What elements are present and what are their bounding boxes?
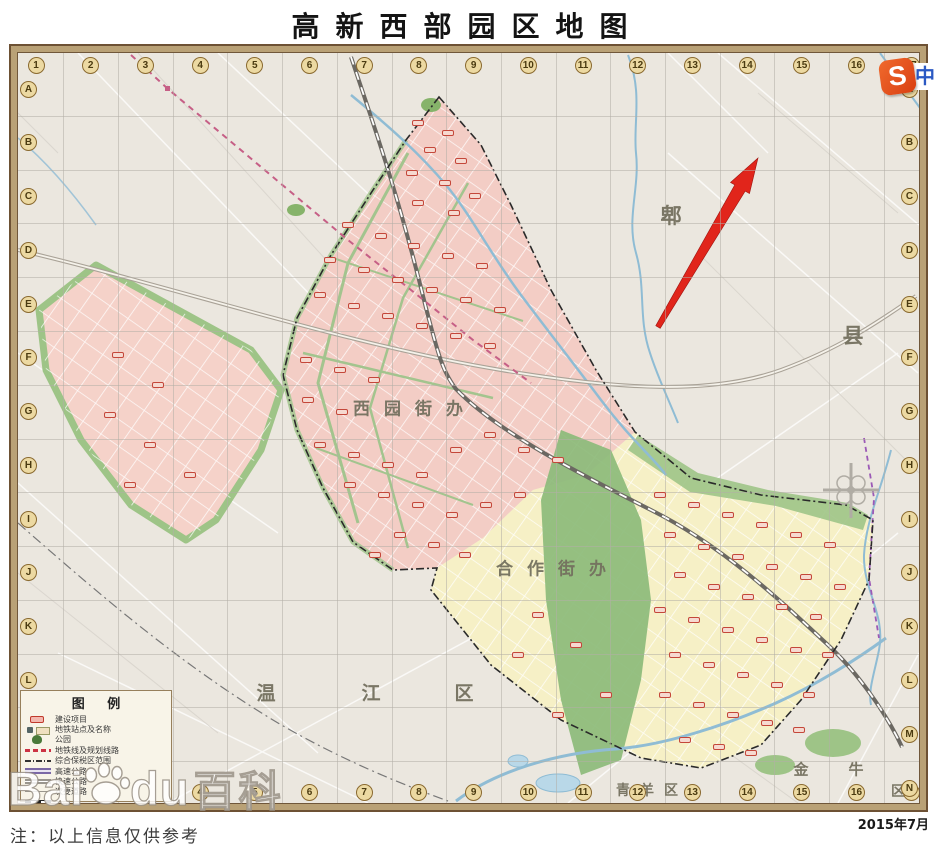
legend-item-label: 建设项目	[55, 714, 87, 725]
project-marker	[732, 554, 744, 560]
project-marker	[674, 572, 686, 578]
district-label: 江	[361, 679, 380, 706]
district-label: 合作街办	[496, 555, 620, 580]
grid-line	[392, 53, 393, 803]
grid-row-label: I	[20, 511, 37, 528]
legend-item: 建设项目	[25, 714, 167, 724]
grid-col-label: 16	[848, 57, 865, 74]
project-marker	[184, 472, 196, 478]
expwy-swatch-icon	[25, 768, 51, 774]
project-marker	[382, 462, 394, 468]
project-marker	[480, 502, 492, 508]
grid-line	[282, 53, 283, 803]
grid-col-label: 10	[520, 57, 537, 74]
project-marker	[570, 642, 582, 648]
grid-col-label: 7	[356, 57, 373, 74]
grid-row-label: I	[901, 511, 918, 528]
district-label: 郫	[661, 200, 682, 230]
grid-col-label: 1	[28, 57, 45, 74]
grid-row-label: H	[20, 457, 37, 474]
metro-station-swatch-icon	[25, 725, 51, 735]
grid-line	[446, 53, 447, 803]
legend-title: 图 例	[34, 693, 167, 712]
park-icon	[421, 98, 441, 112]
project-marker	[679, 737, 691, 743]
project-marker	[532, 612, 544, 618]
project-marker	[369, 552, 381, 558]
project-marker	[790, 532, 802, 538]
project-marker	[382, 313, 394, 319]
legend-box: 图 例 建设项目地铁站点及名称公园地铁线及规划线路综合保税区范围高速公路快速公路…	[20, 690, 172, 802]
project-marker	[708, 584, 720, 590]
grid-line	[829, 53, 830, 803]
project-marker	[344, 482, 356, 488]
project-marker	[439, 180, 451, 186]
project-marker	[745, 750, 757, 756]
project-marker	[450, 333, 462, 339]
district-label: 牛	[848, 759, 863, 780]
grid-line	[18, 600, 919, 601]
project-marker	[314, 442, 326, 448]
rail-swatch-icon	[25, 800, 51, 804]
project-marker	[698, 544, 710, 550]
map-date: 2015年7月	[858, 814, 929, 833]
district-label: 青羊区	[616, 780, 688, 800]
project-marker	[703, 662, 715, 668]
map-frame: 图 例 建设项目地铁站点及名称公园地铁线及规划线路综合保税区范围高速公路快速公路…	[9, 44, 928, 812]
project-marker	[455, 158, 467, 164]
legend-item-label: 综合保税区范围	[55, 755, 111, 766]
project-marker	[742, 594, 754, 600]
project-marker	[727, 712, 739, 718]
project-marker	[124, 482, 136, 488]
project-marker	[737, 672, 749, 678]
project-marker	[514, 492, 526, 498]
grid-row-label: D	[901, 242, 918, 259]
grid-line	[18, 439, 919, 440]
grid-line	[173, 53, 174, 803]
pond	[536, 774, 580, 792]
project-marker	[766, 564, 778, 570]
grid-row-label: M	[901, 726, 918, 743]
project-marker	[664, 532, 676, 538]
project-marker	[112, 352, 124, 358]
grid-row-label: D	[20, 242, 37, 259]
grid-line	[18, 116, 919, 117]
project-marker	[834, 584, 846, 590]
grid-line	[18, 331, 919, 332]
project-marker	[512, 652, 524, 658]
district-label: 西园街办	[353, 395, 477, 420]
project-marker	[378, 492, 390, 498]
project-marker	[428, 542, 440, 548]
legend-item: 快速公路	[25, 776, 167, 786]
project-marker	[756, 522, 768, 528]
grid-line	[774, 53, 775, 803]
project-marker	[518, 447, 530, 453]
project-marker	[722, 627, 734, 633]
grid-row-label: G	[901, 403, 918, 420]
legend-item-label: 地铁线及规划线路	[55, 745, 119, 756]
project-marker	[484, 432, 496, 438]
project-marker	[412, 120, 424, 126]
grid-col-label: 14	[739, 784, 756, 801]
disclaimer-note: 注：以上信息仅供参考	[10, 822, 200, 847]
legend-item-label: 公园	[55, 734, 71, 745]
project-marker	[552, 457, 564, 463]
grid-row-label: C	[20, 188, 37, 205]
project-marker	[688, 617, 700, 623]
logo-s-icon: S	[878, 57, 918, 97]
project-marker	[144, 442, 156, 448]
district-label: 温	[256, 679, 275, 706]
project-marker	[448, 210, 460, 216]
project-marker	[693, 702, 705, 708]
grid-col-label: 11	[575, 57, 592, 74]
grid-line	[720, 53, 721, 803]
west-lobe-streets	[39, 265, 281, 540]
legend-item: 公园	[25, 735, 167, 745]
legend-item-label: 地铁站点及名称	[55, 724, 111, 735]
legend-item: 地铁站点及名称	[25, 724, 167, 734]
district-label: 县	[843, 320, 864, 350]
grid-col-label: 4	[192, 784, 209, 801]
legend-item-label: 次要道路	[55, 786, 87, 797]
grid-col-label: 6	[301, 784, 318, 801]
fastwy-swatch-icon	[25, 779, 51, 784]
project-marker	[375, 233, 387, 239]
project-marker	[412, 502, 424, 508]
project-marker	[669, 652, 681, 658]
grid-row-label: E	[20, 296, 37, 313]
grid-line	[18, 492, 919, 493]
grid-col-label: 3	[137, 57, 154, 74]
grid-line	[18, 277, 919, 278]
legend-item-label: 快速公路	[55, 776, 87, 787]
legend-item: 次要道路	[25, 787, 167, 797]
grid-line	[18, 546, 919, 547]
project-marker	[459, 552, 471, 558]
project-marker	[600, 692, 612, 698]
legend-item-label: 高速公路	[55, 766, 87, 777]
legend-items: 建设项目地铁站点及名称公园地铁线及规划线路综合保税区范围高速公路快速公路次要道路	[25, 714, 167, 804]
grid-row-label: A	[20, 81, 37, 98]
project-marker	[450, 447, 462, 453]
project-marker	[756, 637, 768, 643]
grid-row-label: G	[20, 403, 37, 420]
park-swatch-icon	[32, 735, 42, 744]
grid-line	[18, 170, 919, 171]
project-marker	[822, 652, 834, 658]
district-label: 区	[454, 679, 473, 706]
project-marker	[494, 307, 506, 313]
legend-item: 综合保税区范围	[25, 756, 167, 766]
project-marker	[484, 343, 496, 349]
page-title: 高新西部园区地图	[0, 5, 935, 45]
grid-row-label: E	[901, 296, 918, 313]
project-marker	[713, 744, 725, 750]
project-marker	[416, 323, 428, 329]
grid-col-label: 7	[356, 784, 373, 801]
legend-item: 地铁线及规划线路	[25, 745, 167, 755]
grid-line	[665, 53, 666, 803]
metro-line-swatch-icon	[25, 749, 51, 752]
grid-col-label: 13	[684, 57, 701, 74]
project-marker	[761, 720, 773, 726]
grid-col-label: 6	[301, 57, 318, 74]
project-marker	[348, 452, 360, 458]
grid-col-label: 9	[465, 784, 482, 801]
project-marker	[688, 502, 700, 508]
grid-col-label: 13	[684, 784, 701, 801]
map-canvas: 图 例 建设项目地铁站点及名称公园地铁线及规划线路综合保税区范围高速公路快速公路…	[17, 52, 920, 804]
project-marker	[803, 692, 815, 698]
project-marker	[302, 397, 314, 403]
red-arrow-icon	[656, 158, 758, 328]
grid-col-label: 10	[520, 784, 537, 801]
grid-col-label: 14	[739, 57, 756, 74]
project-marker	[552, 712, 564, 718]
tv-station-logo: S 中	[880, 59, 935, 94]
project-marker	[771, 682, 783, 688]
bonded-swatch-icon	[25, 760, 51, 762]
project-marker	[426, 287, 438, 293]
grid-col-label: 4	[192, 57, 209, 74]
metro-station-icon	[165, 86, 170, 91]
project-marker	[406, 170, 418, 176]
project-marker	[334, 367, 346, 373]
project-marker	[424, 147, 436, 153]
minor-swatch-icon	[25, 791, 51, 792]
project-marker	[336, 409, 348, 415]
project-marker	[654, 607, 666, 613]
grid-col-label: 16	[848, 784, 865, 801]
legend-item: 高速公路	[25, 766, 167, 776]
project-marker	[654, 492, 666, 498]
grid-line	[501, 53, 502, 803]
grid-row-label: C	[901, 188, 918, 205]
grid-row-label: L	[20, 672, 37, 689]
park-icon	[287, 204, 305, 216]
project-marker	[793, 727, 805, 733]
project-swatch-icon	[30, 716, 44, 723]
grid-line	[884, 53, 885, 803]
project-marker	[460, 297, 472, 303]
grid-col-label: 9	[465, 57, 482, 74]
grid-row-label: H	[901, 457, 918, 474]
project-marker	[324, 257, 336, 263]
project-marker	[722, 512, 734, 518]
project-marker	[800, 574, 812, 580]
project-marker	[348, 303, 360, 309]
grid-col-label: 11	[575, 784, 592, 801]
district-label: 金	[793, 759, 808, 780]
grid-line	[556, 53, 557, 803]
project-marker	[408, 243, 420, 249]
green-area-se	[805, 729, 861, 757]
project-marker	[824, 542, 836, 548]
grid-line	[18, 654, 919, 655]
grid-row-label: L	[901, 672, 918, 689]
project-marker	[810, 614, 822, 620]
project-marker	[442, 253, 454, 259]
project-marker	[358, 267, 370, 273]
project-marker	[469, 193, 481, 199]
project-marker	[416, 472, 428, 478]
grid-row-label: N	[901, 780, 918, 797]
project-marker	[342, 222, 354, 228]
project-marker	[776, 604, 788, 610]
project-marker	[368, 377, 380, 383]
grid-line	[337, 53, 338, 803]
grid-line	[227, 53, 228, 803]
project-marker	[394, 532, 406, 538]
project-marker	[476, 263, 488, 269]
project-marker	[442, 130, 454, 136]
project-marker	[659, 692, 671, 698]
project-marker	[104, 412, 116, 418]
legend-item	[25, 797, 167, 804]
project-marker	[300, 357, 312, 363]
project-marker	[392, 277, 404, 283]
project-marker	[314, 292, 326, 298]
grid-line	[610, 53, 611, 803]
project-marker	[152, 382, 164, 388]
project-marker	[446, 512, 458, 518]
page: { "title": "高新西部园区地图", "footer": { "note…	[0, 0, 935, 852]
project-marker	[790, 647, 802, 653]
project-marker	[412, 200, 424, 206]
grid-line	[18, 223, 919, 224]
